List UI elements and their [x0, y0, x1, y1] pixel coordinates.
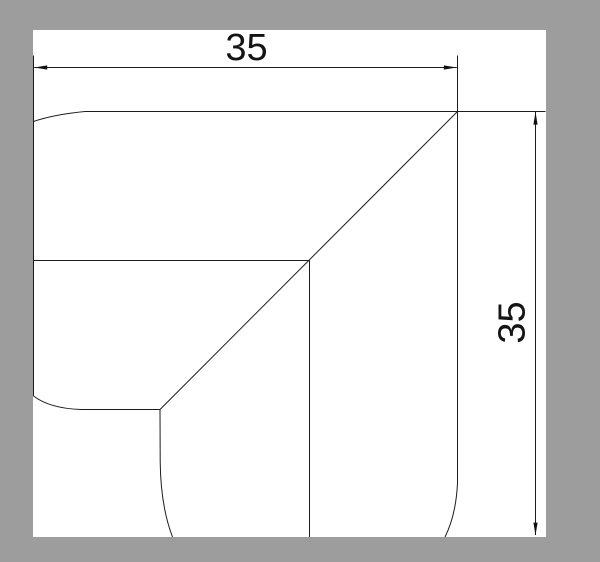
svg-text:35: 35: [492, 301, 534, 343]
svg-text:35: 35: [225, 27, 267, 69]
